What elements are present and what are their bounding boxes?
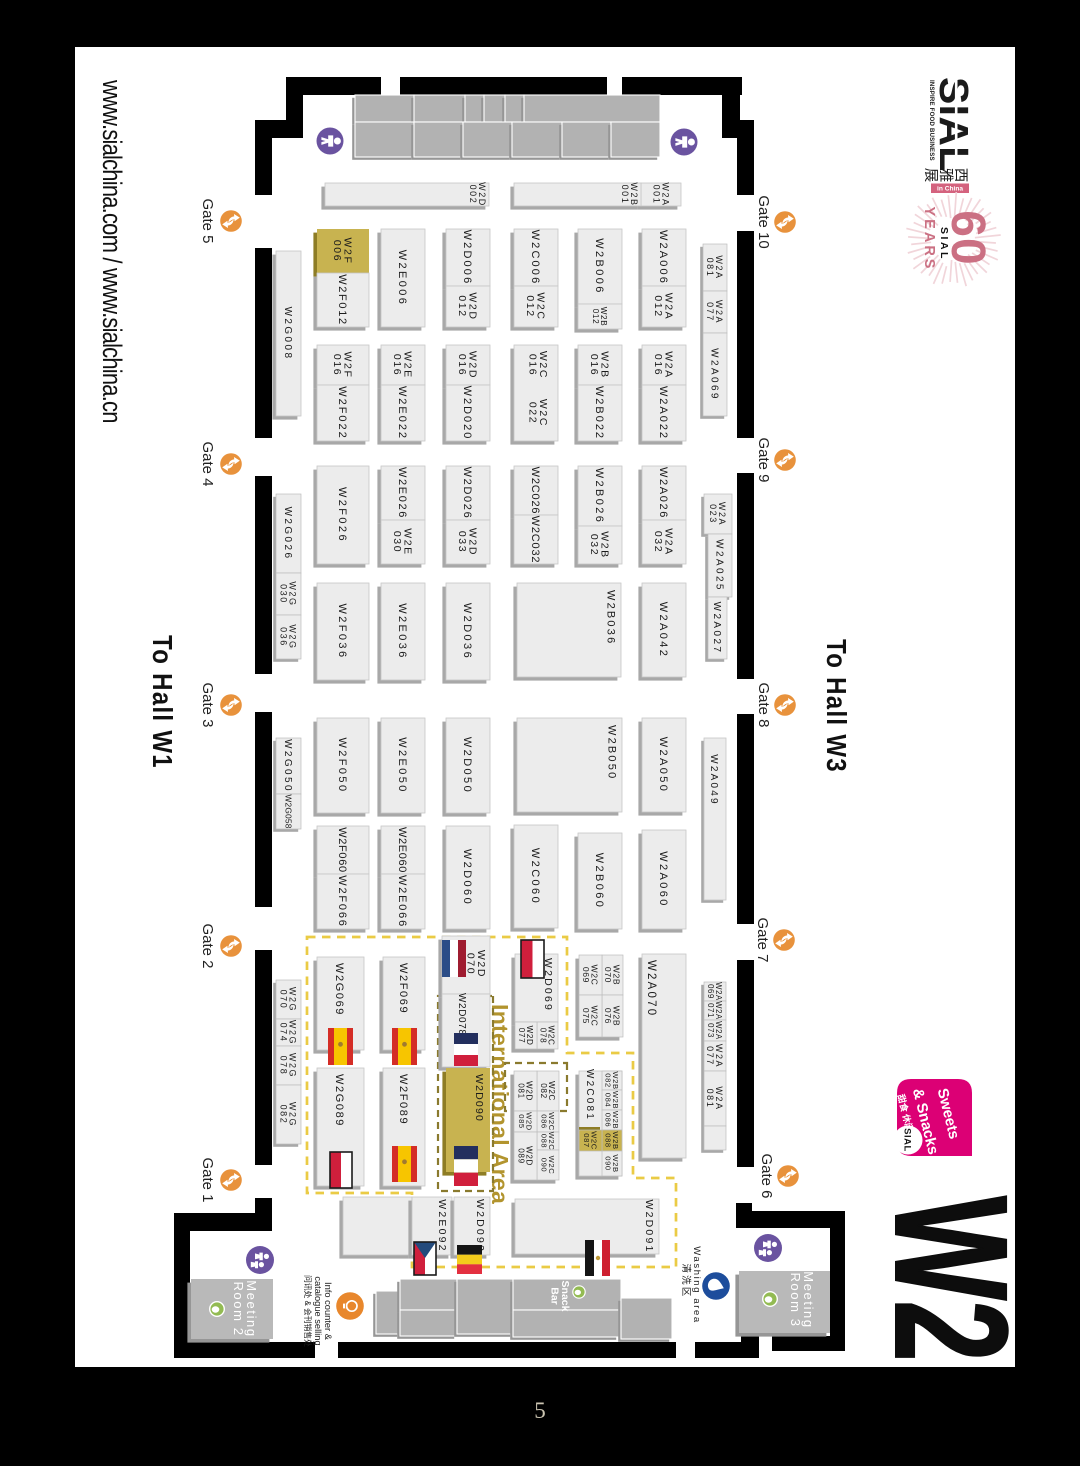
svg-text:W2D077: W2D077: [517, 1026, 534, 1046]
svg-text:W2D089: W2D089: [516, 1146, 533, 1166]
svg-text:in China: in China: [937, 186, 963, 193]
svg-text:W2D090: W2D090: [473, 1074, 485, 1122]
svg-text:www.sialchina.com / www.sial: www.sialchina.com / www.sialchina.cn: [96, 79, 126, 423]
svg-text:W2A006: W2A006: [657, 230, 669, 285]
svg-text:W2F050: W2F050: [336, 738, 348, 794]
svg-text:W2D050: W2D050: [461, 737, 473, 794]
svg-text:W2A027: W2A027: [711, 602, 722, 655]
svg-text:Gate 5: Gate 5: [199, 198, 216, 243]
svg-text:W2A071: W2A071: [706, 1001, 723, 1020]
svg-text:SIAL: SIAL: [931, 77, 977, 172]
svg-text:W2C087: W2C087: [582, 1131, 599, 1150]
svg-text:Gate 9: Gate 9: [755, 437, 772, 482]
svg-text:W2A050: W2A050: [657, 737, 669, 794]
svg-text:W2D092: W2D092: [474, 1199, 486, 1253]
svg-text:W2B050: W2B050: [606, 725, 618, 780]
svg-text:W2A022: W2A022: [657, 386, 669, 440]
svg-text:W2F069: W2F069: [397, 963, 409, 1014]
svg-text:展: 展: [922, 168, 938, 183]
svg-text:W2C026: W2C026: [529, 467, 541, 515]
svg-text:W2E066: W2E066: [396, 875, 408, 928]
svg-text:MeetingRoom 3: MeetingRoom 3: [788, 1271, 816, 1328]
svg-text:W2C069: W2C069: [581, 965, 600, 986]
svg-text:W2A023: W2A023: [708, 502, 727, 526]
svg-text:W2C060: W2C060: [529, 848, 541, 905]
svg-text:To Hall W1: To Hall W1: [147, 635, 179, 769]
svg-text:W2G050: W2G050: [282, 739, 293, 793]
svg-text:W2A049: W2A049: [708, 754, 719, 806]
svg-text:W2D078: W2D078: [456, 993, 467, 1036]
svg-text:W2A069: W2A069: [709, 348, 720, 401]
svg-text:清洗区: 清洗区: [680, 1263, 692, 1298]
svg-text:W2B012: W2B012: [591, 307, 608, 327]
svg-text:W2C090: W2C090: [539, 1156, 556, 1175]
svg-text:W2F060: W2F060: [336, 827, 348, 872]
svg-text:Gate 6: Gate 6: [758, 1153, 775, 1198]
svg-text:W2C016: W2C016: [527, 351, 550, 379]
svg-text:W2D060: W2D060: [461, 849, 473, 906]
svg-text:To Hall W3: To Hall W3: [821, 639, 853, 773]
svg-text:W2A081: W2A081: [705, 1086, 724, 1110]
svg-text:W2D020: W2D020: [461, 386, 473, 441]
svg-text:Gate 2: Gate 2: [199, 923, 216, 968]
svg-text:Gate 8: Gate 8: [755, 682, 772, 727]
svg-text:W2C012: W2C012: [524, 292, 547, 320]
svg-text:W2G069: W2G069: [333, 963, 345, 1016]
svg-text:W2D036: W2D036: [461, 603, 473, 660]
svg-text:W2A077: W2A077: [705, 300, 724, 324]
svg-text:W2B032: W2B032: [588, 531, 611, 559]
svg-text:W2E026: W2E026: [396, 467, 408, 519]
svg-text:W2B084: W2B084: [603, 1091, 620, 1109]
svg-text:W2E016: W2E016: [391, 351, 414, 379]
svg-text:Gate 3: Gate 3: [199, 682, 216, 727]
svg-text:W2G089: W2G089: [333, 1074, 345, 1127]
svg-text:W2A081: W2A081: [705, 255, 724, 279]
svg-text:W2B001: W2B001: [620, 182, 639, 206]
svg-text:W2B088: W2B088: [603, 1131, 620, 1149]
svg-text:W2F036: W2F036: [336, 604, 348, 660]
svg-text:W2G036: W2G036: [279, 624, 298, 649]
svg-text:Gate 7: Gate 7: [754, 917, 771, 962]
svg-text:W2D012: W2D012: [456, 292, 479, 320]
svg-text:SIAL: SIAL: [938, 227, 950, 261]
svg-text:W2: W2: [861, 1196, 1015, 1362]
svg-text:W2C088: W2C088: [539, 1132, 556, 1151]
svg-text:W2A001: W2A001: [651, 182, 670, 206]
svg-text:W2B070: W2B070: [603, 965, 622, 985]
svg-text:W2C032: W2C032: [529, 516, 541, 564]
svg-text:W2F016: W2F016: [331, 352, 354, 379]
svg-text:YEARS: YEARS: [921, 207, 937, 272]
svg-text:W2F022: W2F022: [336, 386, 348, 439]
svg-text:W2A060: W2A060: [657, 851, 669, 908]
svg-text:Washing area: Washing area: [691, 1246, 702, 1323]
svg-text:W2G082: W2G082: [279, 1102, 298, 1127]
svg-text:Info counter &catalogue sellin: Info counter &catalogue selling: [313, 1276, 333, 1345]
svg-text:W2D026: W2D026: [461, 467, 473, 520]
svg-text:W2D016: W2D016: [456, 351, 479, 379]
svg-text:W2G070: W2G070: [279, 987, 298, 1012]
svg-text:W2F012: W2F012: [336, 274, 348, 325]
svg-text:W2B082: W2B082: [603, 1071, 620, 1089]
svg-text:W2F006: W2F006: [331, 238, 354, 265]
svg-text:W2A026: W2A026: [657, 467, 669, 519]
svg-text:W2C075: W2C075: [581, 1006, 600, 1027]
svg-text:W2A073: W2A073: [706, 1021, 723, 1040]
svg-text:W2D033: W2D033: [456, 528, 479, 556]
svg-text:W2B016: W2B016: [588, 351, 611, 379]
svg-text:W2B006: W2B006: [593, 238, 605, 295]
svg-text:W2D070: W2D070: [465, 950, 488, 978]
svg-text:W2G026: W2G026: [282, 507, 293, 561]
svg-text:W2D006: W2D006: [461, 230, 473, 286]
svg-text:W2G058: W2G058: [284, 794, 294, 828]
svg-text:International Area: International Area: [487, 1004, 513, 1204]
svg-text:雅: 雅: [937, 168, 954, 183]
svg-text:W2E022: W2E022: [396, 386, 408, 440]
svg-text:W2F026: W2F026: [336, 487, 348, 543]
svg-text:W2C006: W2C006: [529, 230, 541, 286]
svg-text:MeetingRoom 2: MeetingRoom 2: [231, 1280, 259, 1337]
svg-text:W2A012: W2A012: [652, 293, 675, 321]
svg-text:W2E060: W2E060: [396, 827, 408, 873]
svg-text:W2C086: W2C086: [539, 1112, 556, 1131]
svg-text:W2G008: W2G008: [282, 307, 293, 361]
svg-text:W2E030: W2E030: [391, 528, 414, 556]
svg-text:W2G030: W2G030: [279, 581, 298, 606]
svg-text:W2D091: W2D091: [643, 1199, 655, 1253]
svg-text:W2F066: W2F066: [336, 875, 348, 927]
svg-text:W2A032: W2A032: [652, 528, 675, 556]
svg-text:W2E092: W2E092: [436, 1199, 448, 1252]
svg-text:W2B022: W2B022: [593, 386, 605, 440]
svg-text:W2E036: W2E036: [396, 603, 408, 660]
svg-text:W2F089: W2F089: [397, 1074, 409, 1125]
svg-text:W2C081: W2C081: [584, 1069, 595, 1121]
svg-text:W2B036: W2B036: [605, 590, 617, 645]
svg-text:Gate 1: Gate 1: [199, 1157, 216, 1202]
svg-text:W2B090: W2B090: [603, 1154, 620, 1172]
svg-text:W2A016: W2A016: [652, 351, 675, 379]
svg-text:W2A070: W2A070: [645, 960, 657, 1017]
svg-text:W2C082: W2C082: [539, 1081, 556, 1101]
svg-text:W2A042: W2A042: [657, 602, 669, 659]
svg-text:W2C022: W2C022: [527, 399, 550, 427]
svg-text:W2B060: W2B060: [593, 853, 605, 910]
svg-text:Gate 4: Gate 4: [199, 441, 216, 486]
svg-text:W2D002: W2D002: [468, 182, 487, 207]
svg-text:W2E050: W2E050: [396, 737, 408, 794]
svg-text:W2G074: W2G074: [279, 1020, 298, 1045]
svg-text:W2A069: W2A069: [706, 982, 723, 1001]
svg-text:W2A077: W2A077: [705, 1044, 724, 1068]
svg-text:W2B026: W2B026: [593, 468, 605, 525]
svg-text:W2E006: W2E006: [396, 250, 408, 307]
svg-text:SIAL: SIAL: [902, 1128, 913, 1152]
svg-text:W2A025: W2A025: [714, 539, 725, 592]
svg-text:W2C078: W2C078: [538, 1026, 555, 1046]
svg-text:Gate 10: Gate 10: [755, 195, 772, 248]
svg-text:W2G078: W2G078: [279, 1053, 298, 1078]
svg-text:W2B076: W2B076: [603, 1006, 622, 1026]
svg-text:W2B086: W2B086: [603, 1111, 620, 1129]
svg-text:INSPIRE FOOD BUSINESS: INSPIRE FOOD BUSINESS: [928, 80, 935, 161]
svg-text:W2D085: W2D085: [517, 1112, 534, 1131]
svg-text:问讯处 & 会刊销售处: 问讯处 & 会刊销售处: [303, 1275, 313, 1347]
svg-text:西: 西: [952, 168, 968, 183]
svg-text:W2D081: W2D081: [516, 1081, 533, 1101]
